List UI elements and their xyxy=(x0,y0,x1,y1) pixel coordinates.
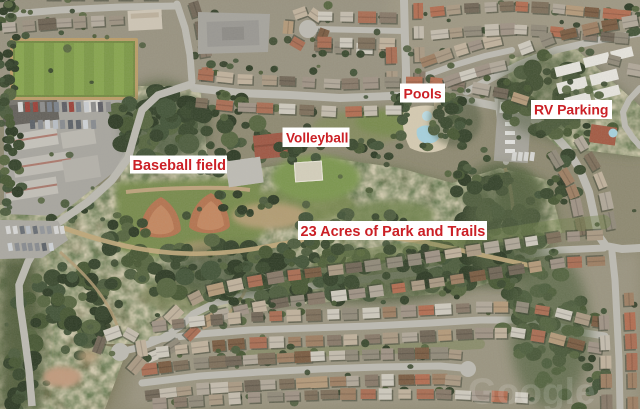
svg-text:Google: Google xyxy=(468,371,595,409)
svg-text:23 Acres of Park and Trails: 23 Acres of Park and Trails xyxy=(301,224,486,240)
svg-text:Pools: Pools xyxy=(404,85,442,101)
svg-text:RV Parking: RV Parking xyxy=(534,102,608,118)
svg-text:Baseball field: Baseball field xyxy=(133,158,226,174)
svg-text:Volleyball: Volleyball xyxy=(286,131,348,146)
